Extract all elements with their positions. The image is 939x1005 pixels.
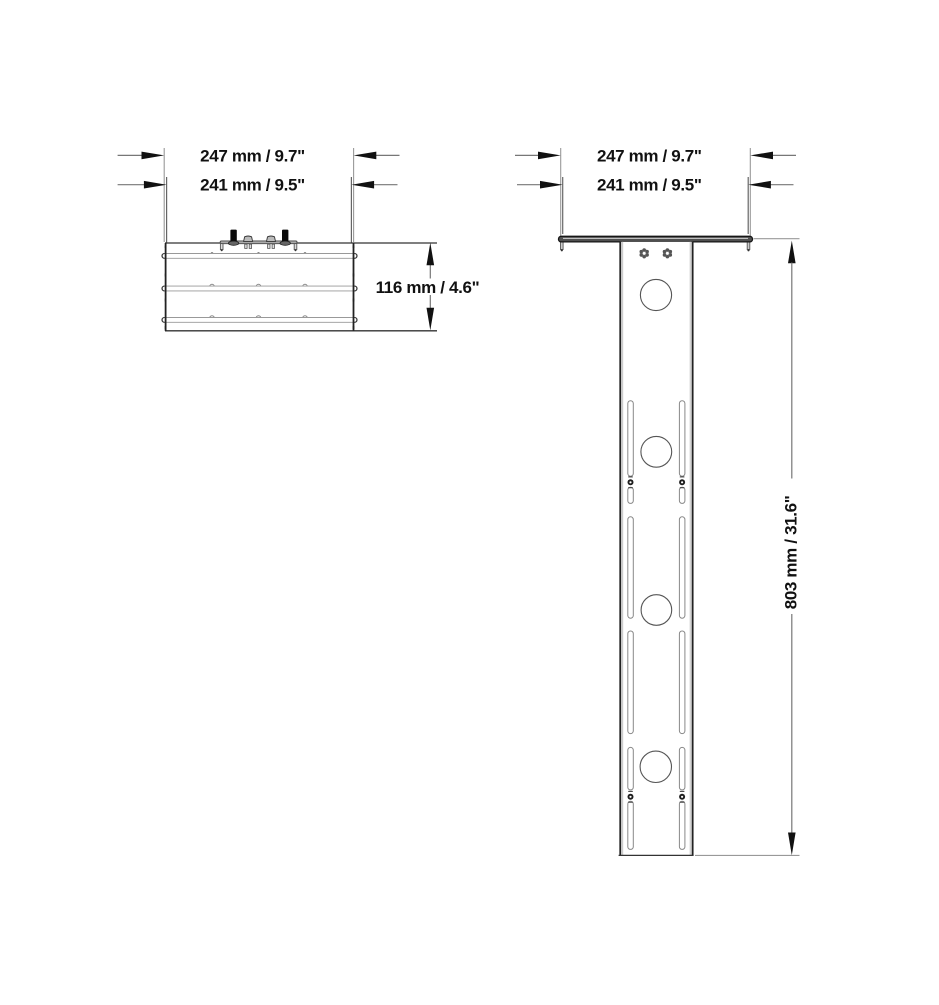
svg-text:116 mm / 4.6": 116 mm / 4.6" (376, 278, 480, 297)
svg-text:241 mm / 9.5": 241 mm / 9.5" (597, 176, 702, 195)
svg-text:241 mm / 9.5": 241 mm / 9.5" (200, 176, 305, 195)
svg-text:247 mm / 9.7": 247 mm / 9.7" (597, 146, 702, 165)
svg-text:803 mm / 31.6": 803 mm / 31.6" (782, 496, 801, 610)
svg-text:247 mm / 9.7": 247 mm / 9.7" (200, 146, 305, 165)
